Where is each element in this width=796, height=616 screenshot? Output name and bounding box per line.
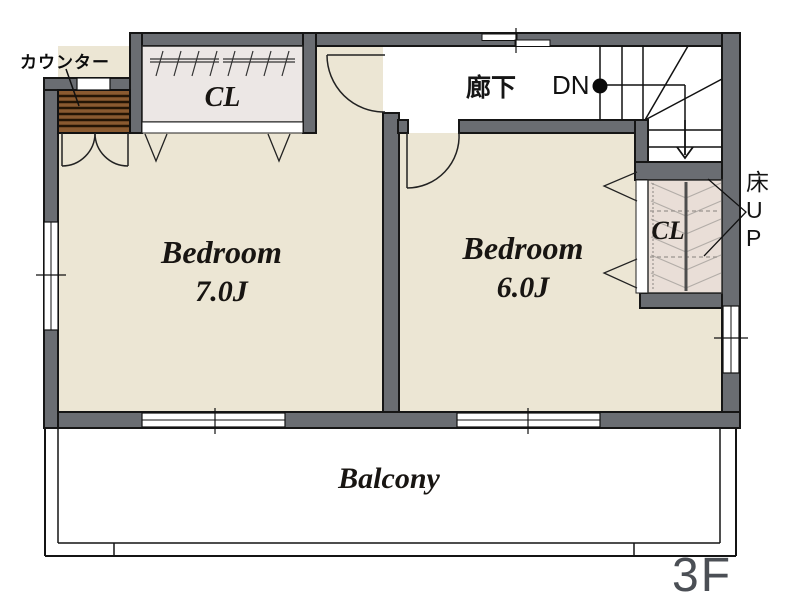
floor-number-label: 3F	[672, 548, 732, 603]
wall-top	[130, 33, 740, 46]
wall-stair-bottom	[635, 162, 722, 180]
floor-up-line2: U	[746, 196, 794, 224]
bedroom-7-name: Bedroom	[58, 232, 385, 272]
stairs-down-label: DN	[552, 70, 590, 101]
floor-up-label: 床 U P	[746, 168, 794, 252]
wall-closet-right-bottom	[640, 293, 722, 308]
floor-plan-page: カウンター CL 廊下 DN Bedroom 7.0J Bedroom 6.0J…	[0, 0, 796, 616]
floor-up-line1: 床	[746, 168, 794, 196]
floor-up-line3: P	[746, 224, 794, 252]
hallway-label: 廊下	[466, 68, 516, 104]
bedroom-6-size: 6.0J	[398, 268, 648, 308]
bedroom-7-label: Bedroom 7.0J	[58, 232, 385, 312]
dn-marker-dot	[593, 79, 608, 94]
closet-left-label: CL	[142, 82, 303, 114]
wall-closet-left-side	[130, 33, 142, 133]
wall-hallway-bedroom6	[459, 120, 648, 133]
bedroom-7-size: 7.0J	[58, 272, 385, 312]
closet-right-label: CL	[636, 216, 700, 246]
bedroom-6-door-opening	[408, 120, 459, 133]
balcony-label: Balcony	[58, 462, 720, 496]
bedroom-6-label: Bedroom 6.0J	[398, 228, 648, 308]
wall-hallway-left-jamb	[398, 120, 408, 133]
bedroom-6-name: Bedroom	[398, 228, 648, 268]
wall-bedroom-partition	[383, 113, 399, 412]
window-counter-nook	[77, 78, 110, 90]
closet-left-door-track	[142, 122, 303, 133]
counter-label: カウンター	[20, 48, 110, 73]
wall-closet-right-side	[303, 33, 316, 133]
